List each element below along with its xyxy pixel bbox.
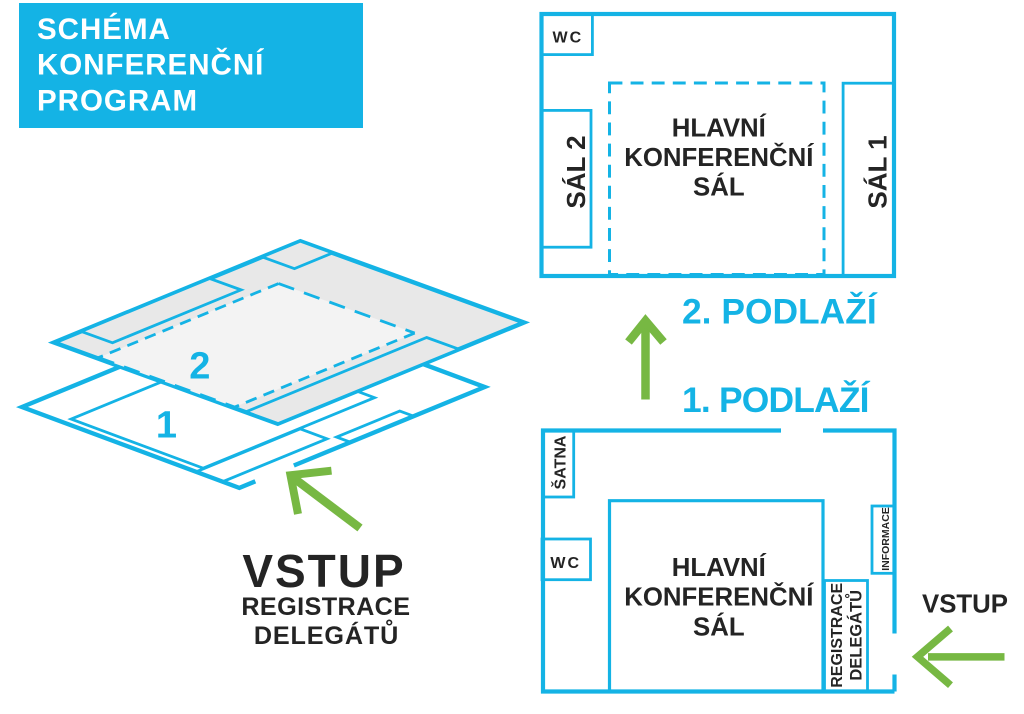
- svg-text:SÁL 1: SÁL 1: [863, 135, 893, 208]
- svg-text:HLAVNÍ: HLAVNÍ: [672, 114, 767, 143]
- svg-text:PROGRAM: PROGRAM: [37, 84, 198, 117]
- svg-text:SCHÉMA: SCHÉMA: [37, 12, 171, 46]
- svg-text:VSTUP: VSTUP: [242, 545, 405, 597]
- svg-text:SÁL: SÁL: [693, 613, 745, 642]
- svg-text:DELEGÁTŮ: DELEGÁTŮ: [254, 618, 399, 650]
- svg-text:1: 1: [156, 405, 177, 447]
- svg-text:KONFERENČNÍ: KONFERENČNÍ: [37, 48, 264, 82]
- svg-text:KONFERENČNÍ: KONFERENČNÍ: [624, 582, 814, 612]
- svg-text:INFORMACE: INFORMACE: [880, 507, 892, 571]
- svg-text:REGISTRACE: REGISTRACE: [241, 593, 410, 621]
- svg-text:KONFERENČNÍ: KONFERENČNÍ: [624, 142, 814, 172]
- svg-text:ŠATNA: ŠATNA: [551, 435, 570, 489]
- svg-text:WC: WC: [552, 29, 583, 46]
- svg-text:WC: WC: [550, 555, 581, 572]
- svg-text:HLAVNÍ: HLAVNÍ: [672, 553, 767, 582]
- svg-text:REGISTRACE: REGISTRACE: [829, 583, 846, 688]
- svg-text:DELEGÁTŮ: DELEGÁTŮ: [846, 590, 866, 681]
- svg-text:2. PODLAŽÍ: 2. PODLAŽÍ: [682, 292, 878, 332]
- svg-text:SÁL: SÁL: [693, 172, 745, 201]
- svg-text:2: 2: [189, 345, 210, 387]
- svg-text:SÁL 2: SÁL 2: [561, 135, 591, 208]
- svg-text:VSTUP: VSTUP: [922, 591, 1008, 619]
- svg-text:1. PODLAŽÍ: 1. PODLAŽÍ: [682, 380, 871, 420]
